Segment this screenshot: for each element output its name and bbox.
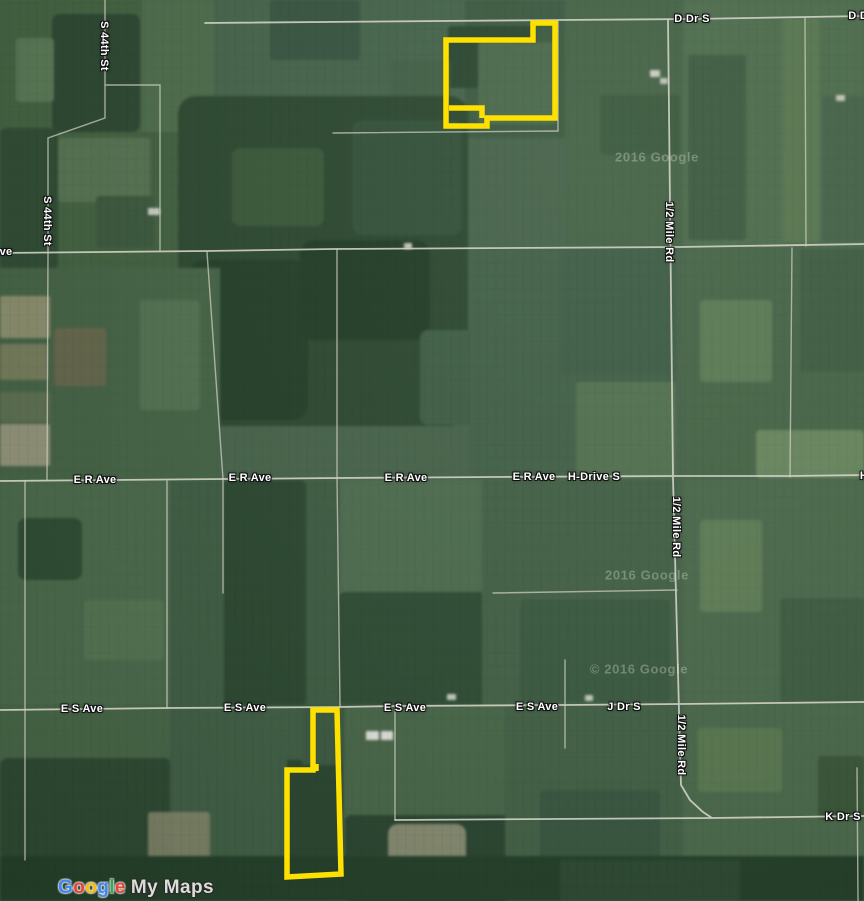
terrain-patch xyxy=(698,728,782,792)
terrain-patch xyxy=(650,70,660,77)
terrain-patch xyxy=(700,520,762,612)
road-label-s-44th-st: S 44th St xyxy=(98,21,110,71)
logo-letter: o xyxy=(73,877,85,898)
terrain-patch xyxy=(800,250,864,372)
road-label-e-r-ave-2: E R Ave xyxy=(229,472,272,484)
terrain-patch xyxy=(270,0,360,60)
terrain-patch xyxy=(478,42,556,124)
terrain-patch xyxy=(0,758,172,860)
terrain-patch xyxy=(836,95,845,101)
terrain-patch xyxy=(381,731,393,740)
road-label-d-dr-s: D Dr S xyxy=(674,13,709,25)
terrain-patch xyxy=(600,95,680,155)
terrain-patch xyxy=(148,812,210,860)
terrain-patch xyxy=(447,694,456,700)
terrain-patch xyxy=(232,148,324,226)
terrain-patch xyxy=(560,860,740,901)
road-label-half-mile-rd: 1/2 Mile Rd xyxy=(663,202,675,263)
road-label-ave-edge: ve xyxy=(0,246,12,258)
terrain-patch xyxy=(780,598,864,702)
terrain-patch xyxy=(0,344,48,380)
terrain-patch xyxy=(140,300,200,410)
terrain-patch xyxy=(0,296,50,338)
terrain-patch xyxy=(366,731,379,740)
terrain-patch xyxy=(96,196,154,248)
terrain-patch xyxy=(688,55,746,240)
road-label-e-r-ave: E R Ave xyxy=(74,474,117,486)
logo-letter: e xyxy=(115,877,126,898)
road-label-d-dr-s-edge: D Dr S xyxy=(848,10,864,22)
terrain-patch xyxy=(16,38,54,102)
terrain-patch xyxy=(0,480,170,706)
google-watermark-2: 2016 Google xyxy=(605,568,689,583)
terrain-patch xyxy=(345,705,505,817)
road-label-e-r-ave-4: E R Ave xyxy=(513,471,556,483)
terrain-patch xyxy=(782,18,820,242)
road-label-e-s-ave: E S Ave xyxy=(61,703,103,715)
google-my-maps-logo: GoogleMy Maps xyxy=(58,876,214,899)
road-label-e-r-ave-3: E R Ave xyxy=(385,472,428,484)
terrain-patch xyxy=(300,240,430,340)
terrain-patch xyxy=(576,382,676,478)
road-label-e-s-ave-3: E S Ave xyxy=(384,702,426,714)
terrain-patch xyxy=(660,78,668,84)
road-label-half-mile-rd-2: 1/2 Mile Rd xyxy=(670,497,682,558)
logo-letter: g xyxy=(97,877,109,898)
road-label-half-mile-rd-3: 1/2 Mile Rd xyxy=(675,715,687,776)
road-label-e-s-ave-4: E S Ave xyxy=(516,701,558,713)
terrain-patch xyxy=(340,480,482,592)
google-watermark: 2016 Google xyxy=(615,150,699,165)
road-label-j-dr-s: J Dr S xyxy=(607,701,641,713)
terrain-patch xyxy=(58,138,150,202)
terrain-patch xyxy=(224,480,306,706)
terrain-patch xyxy=(352,120,462,235)
terrain-patch xyxy=(338,592,493,705)
terrain-patch xyxy=(148,208,160,215)
satellite-map-canvas[interactable]: D Dr S D Dr S S 44th St S 44th St ve E R… xyxy=(0,0,864,901)
road-label-h-drive-s-edge: H-Drive S xyxy=(860,470,864,482)
terrain-patch xyxy=(404,243,412,249)
terrain-patch xyxy=(54,328,106,386)
terrain-patch xyxy=(52,14,140,132)
terrain-patch xyxy=(520,600,670,702)
terrain-patch xyxy=(18,518,82,580)
terrain-patch xyxy=(560,250,675,375)
logo-letter: G xyxy=(58,877,73,898)
terrain-layer xyxy=(0,0,864,901)
terrain-patch xyxy=(700,300,772,382)
terrain-patch xyxy=(756,430,864,478)
road-label-h-drive-s: H-Drive S xyxy=(568,471,620,483)
google-watermark-3: © 2016 Google xyxy=(590,662,688,677)
terrain-patch xyxy=(84,600,164,660)
road-label-s-44th-st-2: S 44th St xyxy=(41,196,53,246)
terrain-patch xyxy=(822,96,864,242)
road-label-k-dr-s: K Dr S xyxy=(825,811,860,823)
terrain-patch xyxy=(585,695,593,701)
logo-letter: o xyxy=(85,877,97,898)
logo-my-maps-text: My Maps xyxy=(131,877,214,898)
terrain-patch xyxy=(0,392,50,422)
terrain-patch xyxy=(0,424,50,466)
road-label-e-s-ave-2: E S Ave xyxy=(224,702,266,714)
